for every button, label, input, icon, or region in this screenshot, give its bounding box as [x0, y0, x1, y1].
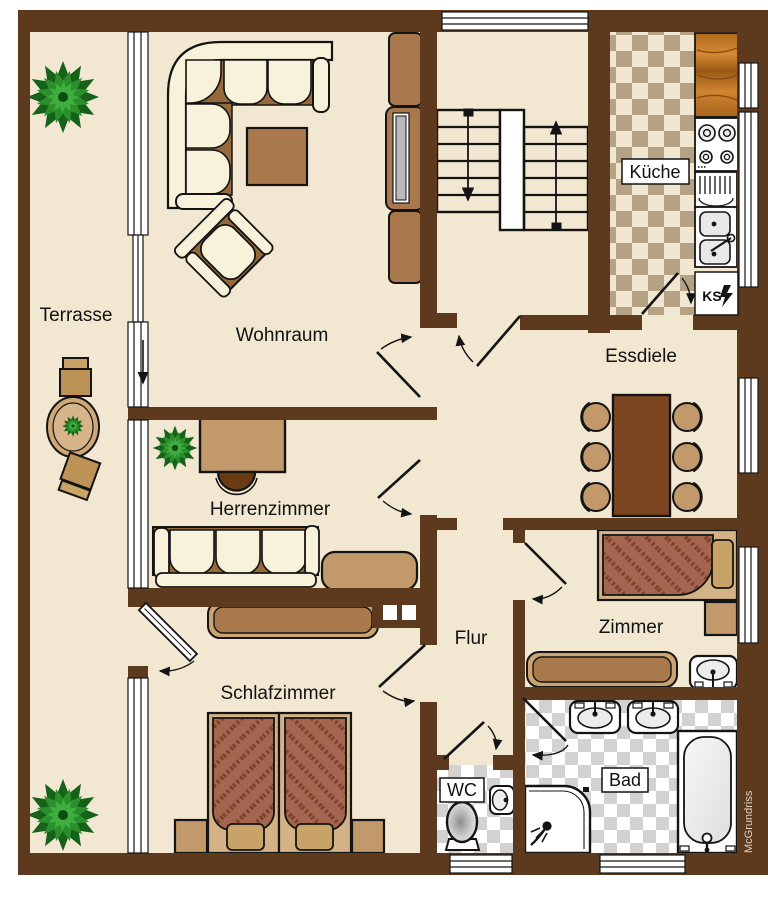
pillow [227, 824, 264, 850]
window [450, 855, 512, 873]
room-label-kueche-box: Küche [622, 159, 689, 184]
terrace-chair-back [63, 358, 88, 369]
sofa-icon [153, 526, 319, 587]
window [739, 63, 758, 108]
wall-zimmer-stub [513, 530, 525, 543]
kitchen-sink-icon [695, 172, 737, 267]
fridge-label: KS [702, 288, 721, 304]
shaft-niche [402, 605, 416, 620]
wall-flur-left [420, 515, 437, 645]
stove-icon [695, 118, 738, 171]
room-label-zimmer: Zimmer [599, 617, 664, 638]
window [739, 547, 758, 643]
bathtub-icon [678, 731, 737, 853]
fridge-lightning-icon: KS [695, 272, 738, 315]
window [600, 855, 685, 873]
bath-basin-icon [628, 701, 678, 733]
window [128, 420, 148, 588]
room-label-wc-box: WC [440, 778, 484, 802]
tv-screen [396, 116, 406, 200]
room-label-bad: Bad [609, 770, 641, 790]
bath-basin-icon [570, 701, 620, 733]
room-label-herrenzimmer: Herrenzimmer [210, 499, 331, 520]
kitchen-counter [695, 33, 739, 117]
wall-flur-left-lower [420, 702, 437, 853]
room-label-bad-box: Bad [602, 768, 648, 792]
window [128, 678, 148, 853]
terrace-railing [133, 235, 143, 322]
bed-blanket [603, 535, 713, 595]
wall-kitchen-bottom [610, 315, 642, 330]
floor-plan-canvas: Terrasse Wohnraum Küche KS Essdiele Herr… [0, 0, 768, 897]
bedroom-sideboard [208, 602, 378, 638]
room-label-terrasse: Terrasse [40, 305, 113, 326]
dining-table-icon [582, 395, 702, 516]
washbasin-icon [690, 656, 737, 689]
bed-blanket [285, 718, 346, 830]
wall-wc-top [493, 755, 520, 770]
pillow [712, 540, 733, 588]
window [739, 378, 758, 473]
double-bed-icon [208, 713, 351, 853]
zimmer-sideboard [527, 652, 677, 687]
wall-essdiele-top [520, 315, 588, 330]
toilet-icon [446, 802, 479, 850]
pillow [296, 824, 333, 850]
ottoman [322, 552, 417, 590]
wall-wohnraum-herrenzimmer [128, 407, 437, 420]
nightstand [705, 602, 737, 635]
shaft-niche [383, 605, 397, 620]
room-label-wc: WC [447, 780, 477, 800]
window [442, 12, 588, 30]
wall-zimmer-bad [513, 687, 737, 700]
tv-cabinet-icon [386, 33, 424, 283]
wall-top [18, 10, 768, 32]
room-label-kueche: Küche [629, 162, 680, 182]
wall-stairs-left [420, 32, 437, 328]
wall-wc-bad [513, 700, 525, 853]
coffee-table [247, 128, 307, 185]
watermark: McGrundriss [743, 790, 755, 853]
room-label-essdiele: Essdiele [605, 346, 677, 367]
bed-blanket [213, 718, 274, 830]
nightstand [352, 820, 384, 853]
room-label-wohnraum: Wohnraum [236, 325, 329, 346]
window [739, 112, 758, 287]
room-label-schlafzimmer: Schlafzimmer [220, 683, 336, 704]
wall-essdiele-bottom [437, 518, 457, 530]
room-label-flur: Flur [455, 628, 488, 649]
desk-icon [200, 418, 285, 472]
window [128, 322, 148, 407]
wall-kitchen-bottom [693, 315, 737, 330]
wall-stub [437, 313, 457, 328]
wall-essdiele-bottom [503, 518, 737, 530]
floor-plan: Terrasse Wohnraum Küche KS Essdiele Herr… [0, 0, 768, 897]
nightstand [175, 820, 207, 853]
wall-left [18, 10, 30, 875]
wc-basin-icon [490, 786, 514, 814]
wall-terrace-stub [128, 666, 148, 678]
single-bed-icon [598, 530, 737, 600]
terrace-chair [60, 369, 91, 396]
shower-icon [525, 786, 590, 853]
window [128, 32, 148, 235]
wall-stairs-right [588, 32, 610, 333]
wall-zimmer-left [513, 600, 525, 700]
